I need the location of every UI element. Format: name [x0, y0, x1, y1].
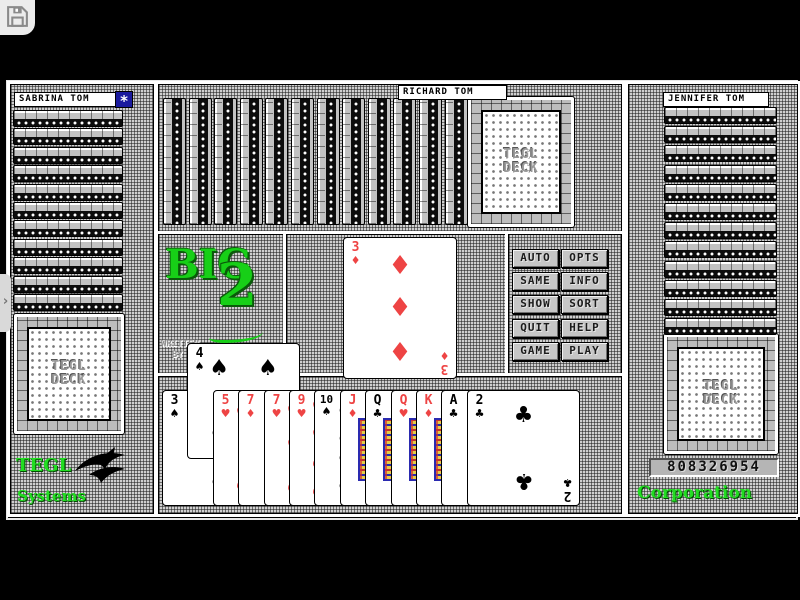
card-index: 3♦ — [347, 241, 364, 266]
card-back-strip-left — [13, 165, 123, 182]
card-index: 5♥ — [217, 394, 234, 419]
card-back-strip-top — [393, 98, 416, 225]
card-index: Q♣ — [369, 394, 386, 419]
card-back-strip-top — [445, 98, 468, 225]
card-back-strip-left — [13, 257, 123, 274]
show-button[interactable]: SHOW — [512, 295, 559, 314]
card-index: A♣ — [445, 394, 462, 419]
card-back-face: TEGL DECK — [27, 327, 111, 421]
card-back-strip-left — [13, 239, 123, 256]
card-index: 10♠ — [318, 394, 335, 417]
card-back-strip-top — [240, 98, 263, 225]
card-back-strip-left — [13, 128, 123, 145]
card-index: 9♥ — [293, 394, 310, 419]
card-back-strip-right — [664, 184, 777, 201]
hand-card-2-club[interactable]: 2♣2♣♣♣ — [467, 390, 580, 506]
card-back-strip-right — [664, 261, 777, 278]
card-back-strip-left — [13, 202, 123, 219]
card-back-strip-right — [664, 280, 777, 297]
card-back-strip-right — [664, 241, 777, 258]
diamond-pip: ♦ — [388, 253, 411, 279]
help-button[interactable]: HELP — [561, 319, 608, 338]
opts-button[interactable]: OPTS — [561, 249, 608, 268]
spade-pip: ♠ — [209, 358, 229, 380]
card-back-strip-right — [664, 222, 777, 239]
card-back-strip-left — [13, 147, 123, 164]
card-back-strip-top — [214, 98, 237, 225]
card-index: 3♠ — [166, 394, 183, 419]
card-back-pile-jennifer: TEGL DECK — [663, 333, 779, 455]
card-back-strip-right — [664, 299, 777, 316]
card-back-strip-right — [664, 165, 777, 182]
card-back-strip-top — [342, 98, 365, 225]
card-index: 7♥ — [268, 394, 285, 419]
game-button[interactable]: GAME — [512, 342, 559, 361]
card-index: 4♠ — [191, 347, 208, 372]
same-button[interactable]: SAME — [512, 272, 559, 291]
card-back-strip-left — [13, 220, 123, 237]
card-back-strip-top — [419, 98, 442, 225]
game-screen: › SABRINA TOM * TEGL DECK TEGL Systems — [0, 0, 800, 600]
card-back-strip-top — [291, 98, 314, 225]
card-back-strip-top — [317, 98, 340, 225]
card-back-strip-right — [664, 318, 777, 335]
player-name-jennifer: JENNIFER TOM — [663, 92, 769, 107]
diamond-pip: ♦ — [388, 295, 411, 321]
sort-button[interactable]: SORT — [561, 295, 608, 314]
chevron-right-icon: › — [3, 294, 8, 309]
card-back-strip-top — [368, 98, 391, 225]
side-menu-tab[interactable]: › — [0, 274, 11, 332]
quit-button[interactable]: QUIT — [512, 319, 559, 338]
card-index: Q♥ — [395, 394, 412, 419]
card-back-pile-richard: TEGL DECK — [467, 96, 575, 228]
club-pip: ♣ — [514, 405, 534, 427]
card-index: 2♣ — [471, 394, 488, 419]
info-button[interactable]: INFO — [561, 272, 608, 291]
deck-label: TEGL DECK — [503, 148, 538, 177]
play-button[interactable]: PLAY — [561, 342, 608, 361]
deck-label: TEGL DECK — [51, 360, 86, 389]
card-back-face: TEGL DECK — [481, 110, 561, 214]
card-back-strip-right — [664, 107, 777, 124]
card-back-strip-right — [664, 203, 777, 220]
card-index: K♦ — [420, 394, 437, 419]
played-card-3-diamond: 3♦3♦♦♦♦ — [343, 237, 457, 379]
card-back-strip-left — [13, 110, 123, 127]
deck-label: TEGL DECK — [703, 380, 738, 409]
card-index: 7♦ — [242, 394, 259, 419]
card-index: 2♣ — [559, 477, 576, 502]
card-back-strip-right — [664, 145, 777, 162]
player-name-sabrina: SABRINA TOM — [14, 92, 120, 107]
logo-two-text: 2 — [217, 251, 257, 319]
card-back-strip-left — [13, 184, 123, 201]
club-pip: ♣ — [514, 469, 534, 491]
card-back-strip-left — [13, 294, 123, 311]
corporation-label: Corporation — [637, 483, 752, 503]
company-name-top: TEGL — [16, 455, 71, 476]
card-index: J♦ — [344, 394, 361, 419]
auto-button[interactable]: AUTO — [512, 249, 559, 268]
card-back-strip-top — [189, 98, 212, 225]
score-serial-field: 808326954 — [649, 458, 779, 477]
card-back-strip-right — [664, 126, 777, 143]
card-back-face: TEGL DECK — [677, 347, 765, 441]
card-back-pile-sabrina: TEGL DECK — [13, 313, 125, 435]
player-name-richard: RICHARD TOM — [398, 85, 507, 100]
company-name-bottom: Systems — [17, 487, 86, 505]
diamond-pip: ♦ — [388, 337, 411, 363]
card-index: 3♦ — [436, 350, 453, 375]
card-back-strip-top — [163, 98, 186, 225]
spade-pip: ♠ — [258, 358, 278, 380]
logo-swoosh — [209, 327, 263, 343]
star-gadget-icon[interactable]: * — [115, 91, 133, 108]
card-back-strip-top — [265, 98, 288, 225]
save-button[interactable] — [0, 0, 35, 35]
card-back-strip-left — [13, 276, 123, 293]
